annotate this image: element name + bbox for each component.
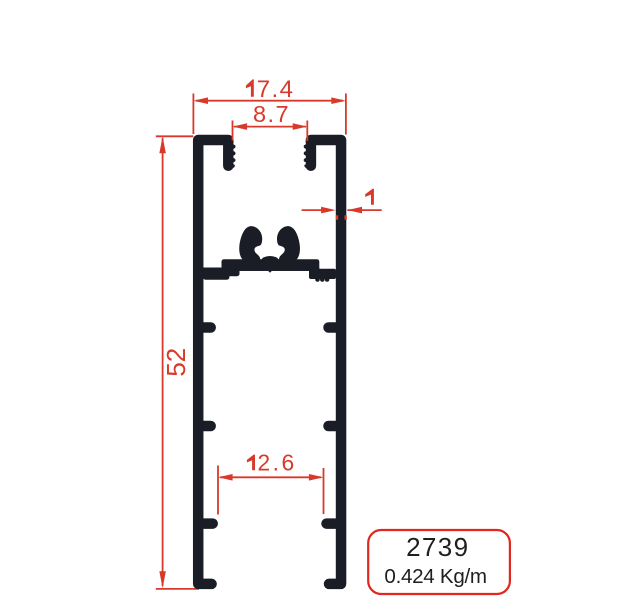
svg-text:8.7: 8.7 (253, 101, 290, 127)
svg-text:0.424 Kg/m: 0.424 Kg/m (384, 565, 486, 588)
svg-text:2739: 2739 (406, 532, 469, 562)
svg-text:2.6: 2.6 (258, 449, 297, 475)
svg-text:7.4: 7.4 (257, 76, 295, 103)
svg-text:52: 52 (161, 348, 191, 377)
